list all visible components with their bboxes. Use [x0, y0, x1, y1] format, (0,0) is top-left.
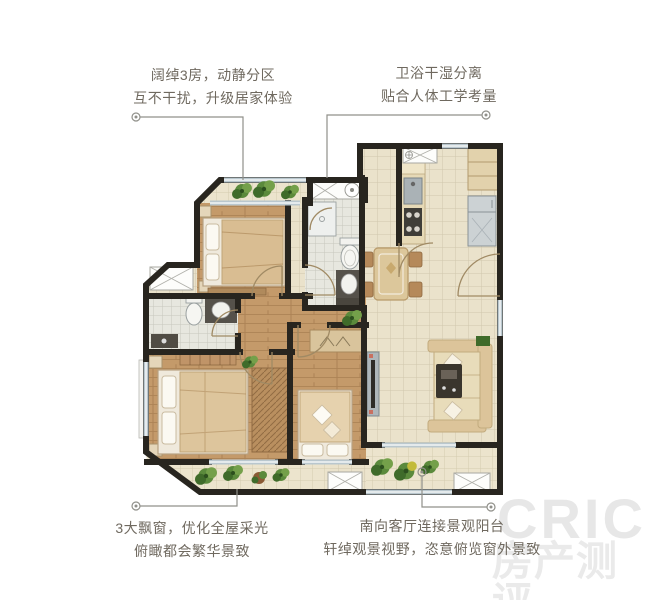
annotation-line: 阔绰3房，动静分区: [93, 64, 333, 87]
annotation-top-right: 卫浴干湿分离 贴合人体工学考量: [319, 62, 559, 108]
annotation-line: 轩绰观景视野，恣意俯览窗外景致: [306, 538, 558, 561]
annotation-line: 俯瞰都会繁华景致: [72, 540, 312, 563]
annotation-line: 卫浴干湿分离: [319, 62, 559, 85]
annotation-line: 互不干扰，升级居家体验: [93, 87, 333, 110]
floorplan-page: CRIC 房产测评 阔绰3房，动静分区 互不干扰，升级居家体验 卫浴干湿分离 贴…: [0, 0, 651, 600]
bedroom-2-furniture: [199, 206, 285, 295]
annotation-line: 贴合人体工学考量: [319, 85, 559, 108]
annotation-line: 南向客厅连接景观阳台: [306, 515, 558, 538]
annotation-bottom-right: 南向客厅连接景观阳台 轩绰观景视野，恣意俯览窗外景致: [306, 515, 558, 561]
annotation-bottom-left: 3大飘窗，优化全屋采光 俯瞰都会繁华景致: [72, 517, 312, 563]
annotation-line: 3大飘窗，优化全屋采光: [72, 517, 312, 540]
annotation-top-left: 阔绰3房，动静分区 互不干扰，升级居家体验: [93, 64, 333, 110]
